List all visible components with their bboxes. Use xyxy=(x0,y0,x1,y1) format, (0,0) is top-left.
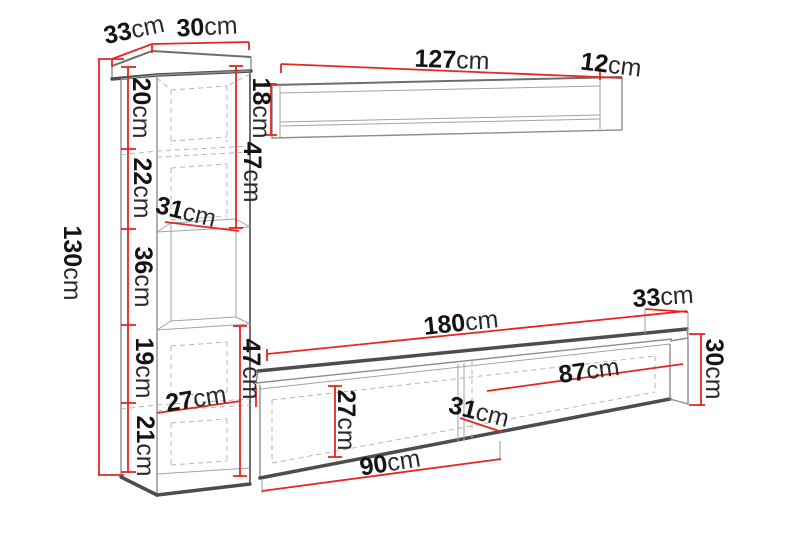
cabinet-lower-span-label: 47cm xyxy=(237,338,265,399)
tv-stand-inner-height-label: 27cm xyxy=(332,389,360,450)
cabinet-top-width-label: 30cm xyxy=(176,11,239,42)
tv-stand-height-label: 30cm xyxy=(700,338,728,399)
tv-stand-width-label: 180cm xyxy=(422,305,500,341)
wall-shelf-outline xyxy=(272,77,622,138)
cabinet-upper-span-label: 47cm xyxy=(238,141,266,202)
cabinet-height-label: 130cm xyxy=(58,225,86,300)
cabinet-section5-label: 21cm xyxy=(131,415,159,476)
tv-stand-right-compartment-label: 87cm xyxy=(557,353,621,389)
wall-shelf-width-label: 127cm xyxy=(414,45,490,76)
tv-stand-inner-depth-label: 31cm xyxy=(446,391,512,433)
tv-stand-depth-label: 33cm xyxy=(632,281,695,313)
wall-shelf-height-label: 18cm xyxy=(247,77,275,138)
cabinet-section2-label: 22cm xyxy=(128,157,156,218)
cabinet-section1-label: 20cm xyxy=(127,77,155,138)
diagram-canvas: 33cm 30cm 130cm 20cm 22cm 36cm 19cm 21cm… xyxy=(0,0,800,533)
cabinet-section3-label: 36cm xyxy=(129,246,157,307)
furniture-dimensions-diagram: 33cm 30cm 130cm 20cm 22cm 36cm 19cm 21cm… xyxy=(0,0,800,533)
cabinet-shelf-depth-label: 31cm xyxy=(153,191,219,233)
cabinet-bottom-depth-label: 27cm xyxy=(164,380,229,417)
tv-stand-left-compartment-label: 90cm xyxy=(358,444,423,481)
dimension-lines xyxy=(98,42,705,491)
cabinet-section4-label: 19cm xyxy=(130,337,158,398)
